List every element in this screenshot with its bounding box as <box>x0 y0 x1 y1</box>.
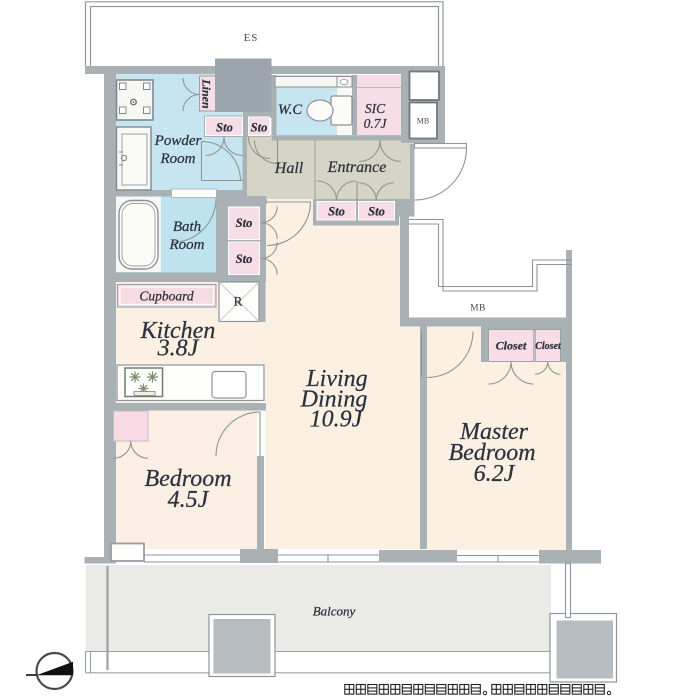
svg-text:Powder: Powder <box>154 133 202 149</box>
svg-text:Entrance: Entrance <box>327 159 387 176</box>
svg-text:Sto: Sto <box>251 121 268 135</box>
svg-text:0.7J: 0.7J <box>364 116 388 131</box>
svg-text:Room: Room <box>169 237 205 253</box>
svg-text:Closet: Closet <box>535 341 562 352</box>
svg-text:Balcony: Balcony <box>313 604 356 619</box>
svg-text:10.9J: 10.9J <box>310 407 364 433</box>
svg-text:Cupboard: Cupboard <box>139 289 194 304</box>
svg-text:MB: MB <box>417 117 429 126</box>
svg-text:Hall: Hall <box>274 160 304 177</box>
svg-text:Sto: Sto <box>236 216 253 230</box>
svg-text:Closet: Closet <box>496 339 527 353</box>
svg-text:Bath: Bath <box>173 219 201 235</box>
svg-text:SIC: SIC <box>365 101 386 116</box>
svg-text:Sto: Sto <box>368 205 385 219</box>
svg-text:ES: ES <box>244 32 259 44</box>
svg-text:6.2J: 6.2J <box>474 461 516 487</box>
svg-text:Sto: Sto <box>328 205 345 219</box>
svg-text:4.5J: 4.5J <box>168 487 210 513</box>
svg-text:R: R <box>234 294 243 309</box>
svg-text:3.8J: 3.8J <box>157 336 200 362</box>
svg-text:MB: MB <box>470 304 486 314</box>
svg-text:Sto: Sto <box>236 252 253 266</box>
svg-text:Room: Room <box>160 151 196 167</box>
svg-text:Linen: Linen <box>200 78 214 109</box>
svg-text:W.C: W.C <box>278 102 302 118</box>
svg-text:Sto: Sto <box>216 121 233 135</box>
